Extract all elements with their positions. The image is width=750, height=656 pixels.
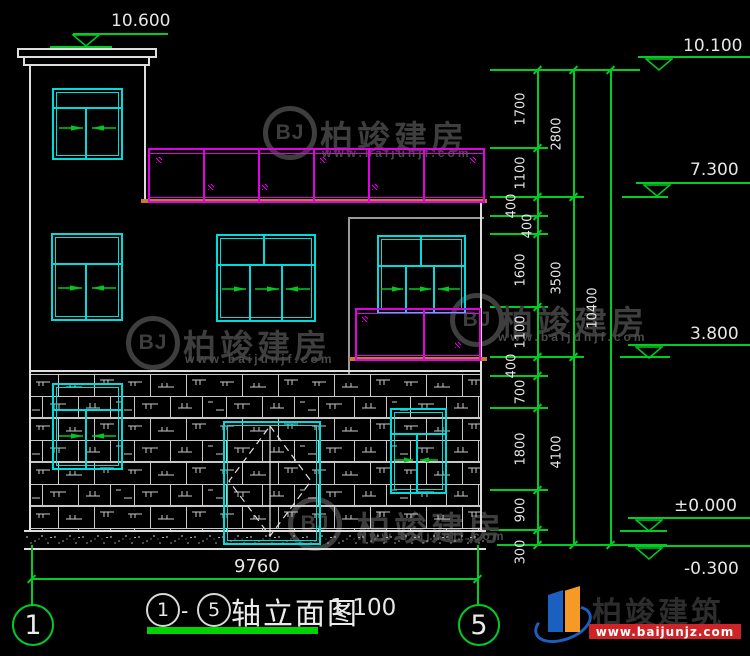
elevation-value: 3.800 (690, 324, 739, 344)
railing-top-rail (150, 153, 483, 154)
balcony-railing (355, 308, 481, 361)
window-transom (53, 263, 121, 265)
window-2f-right (377, 235, 466, 314)
sash-arrow-icon (57, 283, 83, 293)
sash-arrow-icon (58, 431, 84, 441)
title-separator: - (181, 598, 188, 624)
building-left-wall (29, 64, 31, 532)
railing-post (423, 150, 425, 201)
watermark-url: www.baijunjf.com (185, 352, 335, 366)
elevation-value: 10.600 (111, 11, 170, 31)
elevation-triangle-icon (72, 34, 100, 47)
door-diamond-pattern (225, 423, 315, 539)
sash-arrow-icon (437, 284, 461, 294)
elevation-triangle-icon (635, 547, 663, 560)
title-axis-start-bubble: 1 (146, 593, 180, 627)
building-right-wall (480, 203, 482, 532)
railing-top-rail (357, 313, 479, 314)
brand-url: www.baijunjz.com (596, 625, 735, 639)
elevation-triangle-icon (635, 346, 663, 359)
railing-hatch-mark (262, 184, 268, 190)
elevation-triangle-icon (643, 184, 671, 197)
window-transom (54, 107, 121, 109)
dim-label: 400 (505, 354, 520, 379)
railing-hatch-mark (362, 316, 368, 322)
railing-post (203, 150, 205, 201)
sash-arrow-icon (394, 455, 414, 465)
dim-label: 900 (514, 498, 529, 523)
window-tower (52, 88, 123, 160)
dim-label: 400 (505, 194, 520, 219)
railing-hatch-mark (470, 157, 476, 163)
second-floor-line (29, 370, 482, 372)
window-mullion (85, 263, 87, 319)
railing-hatch-mark (208, 184, 214, 190)
elevation-value: -0.300 (684, 559, 739, 579)
railing-post (313, 150, 315, 201)
dimension-extension-line (573, 69, 575, 546)
dim-label: 3500 (550, 261, 565, 294)
dim-label: 300 (514, 540, 529, 565)
sash-arrow-icon (285, 284, 311, 294)
dim-label: 1600 (514, 253, 529, 286)
sash-arrow-icon (58, 123, 84, 133)
window-transom (54, 409, 121, 411)
window-2f-left (51, 233, 123, 321)
tower-right-wall (144, 64, 146, 200)
dim-label: 1700 (514, 92, 529, 125)
railing-bottom-rail (150, 197, 483, 198)
overall-width-dim: 9760 (234, 556, 280, 577)
sash-arrow-icon (221, 284, 247, 294)
window-mullion (405, 265, 407, 312)
title-underline (147, 627, 318, 634)
window-transom (379, 265, 464, 267)
window-mullion (85, 409, 87, 468)
elevation-value: ±0.000 (674, 496, 737, 516)
window-transom (392, 433, 445, 435)
sash-arrow-icon (419, 455, 439, 465)
dim-label: 10400 (586, 287, 601, 328)
railing-hatch-mark (320, 157, 326, 163)
drawing-scale: 1:100 (330, 595, 396, 621)
window-1f-left (52, 383, 123, 470)
window-mullion (85, 107, 87, 158)
sash-arrow-icon (254, 284, 280, 294)
elevation-value: 10.100 (683, 36, 742, 56)
entrance-door (223, 421, 321, 545)
window-2f-center (216, 234, 316, 322)
window-mullion (281, 264, 283, 320)
window-1f-right (390, 408, 447, 494)
window-mullion (433, 265, 435, 312)
sash-arrow-icon (408, 284, 432, 294)
dim-label: 1100 (514, 315, 529, 348)
window-mullion (249, 264, 251, 320)
railing-post (258, 150, 260, 201)
sash-arrow-icon (91, 123, 117, 133)
dimension-line (31, 578, 477, 580)
elevation-value: 7.300 (690, 160, 739, 180)
dimension-extension-line (610, 69, 612, 546)
axis-bubble-5: 5 (458, 604, 500, 646)
window-mullion (416, 433, 418, 492)
tower-parapet-cap-bottom (23, 56, 150, 66)
elevation-triangle-icon (645, 58, 673, 71)
dim-label: 4100 (550, 435, 565, 468)
dim-label: 1100 (514, 156, 529, 189)
window-top-divider (420, 237, 422, 265)
title-axis-end-bubble: 5 (197, 593, 231, 627)
dimension-line (490, 69, 640, 71)
sash-arrow-icon (91, 283, 117, 293)
elevation-triangle-icon (635, 519, 663, 532)
railing-post (368, 150, 370, 201)
dim-label: 2800 (550, 117, 565, 150)
brand-banner: www.baijunjz.com (589, 624, 741, 639)
axis-bubble-1: 1 (12, 604, 54, 646)
dim-label: 700 (514, 380, 529, 405)
dim-label: 1800 (514, 432, 529, 465)
watermark-logo-icon: BJ (126, 316, 180, 370)
window-transom (218, 264, 314, 266)
cad-elevation-drawing: BJ 柏竣建房 www.baijunjf.com BJ 柏竣建房 www.bai… (0, 0, 750, 656)
window-top-divider (263, 236, 265, 264)
dim-label: 400 (521, 214, 536, 239)
roof-terrace-railing (148, 148, 485, 203)
railing-hatch-mark (372, 184, 378, 190)
railing-post (423, 310, 425, 359)
railing-hatch-mark (156, 157, 162, 163)
sash-arrow-icon (380, 284, 404, 294)
railing-hatch-mark (455, 342, 461, 348)
sash-arrow-icon (91, 431, 117, 441)
brand-logo-icon (535, 583, 589, 641)
railing-bottom-rail (357, 355, 479, 356)
